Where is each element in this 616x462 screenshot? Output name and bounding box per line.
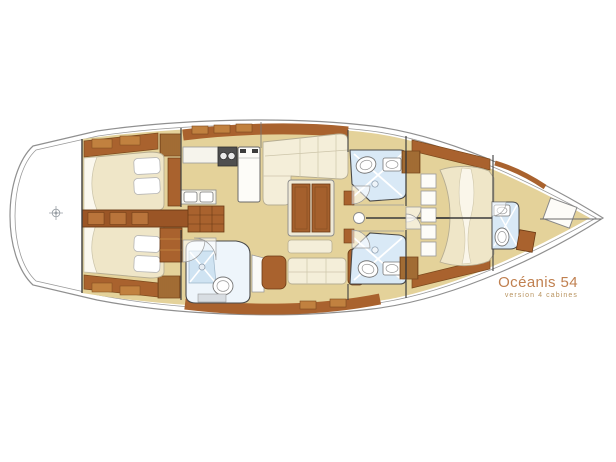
head-forward-port [344, 150, 406, 205]
sill [198, 294, 226, 302]
bow-cabinet [516, 230, 535, 252]
hanging-locker [400, 257, 418, 279]
drawer-cabinet [188, 206, 224, 232]
bench [288, 240, 332, 253]
hanging-locker [402, 151, 420, 173]
hanging-locker [158, 276, 180, 298]
stove-icon [218, 147, 237, 166]
toilet-icon [495, 228, 509, 246]
fridge [238, 147, 260, 202]
pillow [134, 235, 161, 252]
bow-head [492, 202, 519, 249]
hanging-locker [160, 134, 181, 156]
toilet-icon [213, 277, 233, 295]
sink-icon [383, 262, 401, 275]
plan-title: Océanis 54 [498, 274, 578, 291]
shower-icon [372, 181, 378, 187]
counter [183, 147, 218, 163]
head-forward-starboard [344, 229, 406, 284]
pillow [134, 177, 161, 194]
side-cabinet [168, 158, 181, 206]
side-table [262, 256, 286, 289]
pillow [134, 157, 161, 174]
boat-floorplan: Océanis 54 version 4 cabines [0, 0, 616, 462]
plan-subtitle: version 4 cabines [505, 291, 578, 300]
salon-table [288, 180, 334, 236]
nav-seat [160, 228, 182, 262]
settee [288, 258, 346, 284]
mast-step-icon [354, 213, 365, 224]
pillow [134, 255, 161, 272]
floorplan-canvas [0, 0, 616, 462]
sink-icon [181, 190, 216, 204]
shower-icon [372, 247, 378, 253]
shelf-steps [421, 174, 436, 256]
sink-icon [383, 158, 401, 171]
